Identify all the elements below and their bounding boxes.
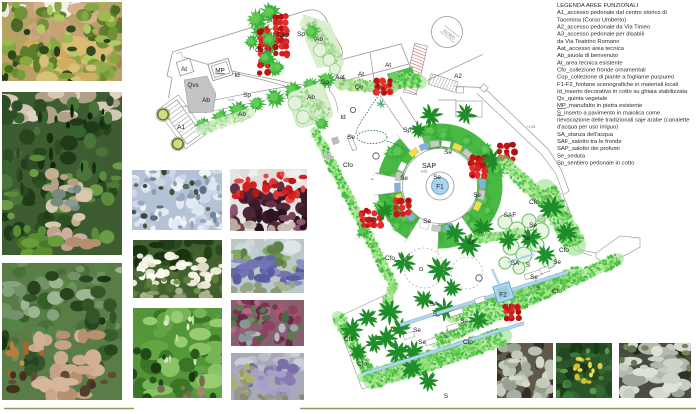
svg-text:Se: Se xyxy=(460,318,468,325)
svg-text:Se: Se xyxy=(418,339,426,346)
svg-text:MP: MP xyxy=(215,68,225,75)
svg-text:rievocazione delle tradizional: rievocazione delle tradizionali saje ara… xyxy=(557,118,690,124)
svg-text:Se: Se xyxy=(347,134,355,141)
svg-text:F1: F1 xyxy=(436,184,444,191)
svg-text:Cfo: Cfo xyxy=(552,288,562,295)
svg-text:Id_inserto decorativo in cotto: Id_inserto decorativo in cotto su ghiaia… xyxy=(557,89,688,95)
svg-text:SA: SA xyxy=(511,260,520,267)
svg-text:At: At xyxy=(385,62,391,69)
svg-text:Ab: Ab xyxy=(202,97,210,104)
svg-text:Cop: Cop xyxy=(255,47,267,54)
svg-text:Sp: Sp xyxy=(321,79,329,86)
svg-text:Se: Se xyxy=(400,175,408,182)
svg-text:Cfo_collezione fronde ornament: Cfo_collezione fronde ornamentali xyxy=(557,67,646,73)
svg-text:SA: SA xyxy=(430,301,439,308)
svg-text:Ab_aiuola di benvenuto: Ab_aiuola di benvenuto xyxy=(557,53,618,59)
svg-text:Id: Id xyxy=(340,114,346,121)
svg-text:da Via Teatrino Romano: da Via Teatrino Romano xyxy=(557,39,619,45)
svg-text:Sp: Sp xyxy=(297,31,305,38)
svg-text:Sp: Sp xyxy=(403,127,411,134)
svg-text:Taormina (Corso Umberto): Taormina (Corso Umberto) xyxy=(557,17,626,23)
svg-text:Qvs: Qvs xyxy=(187,82,198,89)
svg-text:Se: Se xyxy=(553,259,561,266)
svg-text:A1_accesso pedonale dal centro: A1_accesso pedonale dal centro storico d… xyxy=(557,10,667,16)
svg-text:Cfo: Cfo xyxy=(344,336,354,343)
svg-text:Cfo: Cfo xyxy=(357,361,367,368)
svg-text:Sp_sentiero pedonale in cotto: Sp_sentiero pedonale in cotto xyxy=(557,161,634,167)
svg-text:d'acqua per uso irriguo): d'acqua per uso irriguo) xyxy=(557,125,618,131)
svg-text:Se: Se xyxy=(522,235,530,242)
svg-text:Se: Se xyxy=(433,174,441,181)
svg-text:SA_stanza dell'acqua: SA_stanza dell'acqua xyxy=(557,132,614,138)
svg-text:A1: A1 xyxy=(177,124,185,131)
svg-text:Cfo: Cfo xyxy=(343,162,353,169)
svg-text:+1.05: +1.05 xyxy=(527,125,536,129)
svg-text:Cfo: Cfo xyxy=(559,247,569,254)
svg-text:Ab: Ab xyxy=(315,36,323,43)
svg-text:S: S xyxy=(444,393,448,400)
svg-text:Cop: Cop xyxy=(365,217,377,224)
svg-text:Cfo: Cfo xyxy=(463,339,473,346)
svg-text:F2: F2 xyxy=(499,292,507,299)
svg-text:S: S xyxy=(433,311,437,318)
svg-text:Ab: Ab xyxy=(307,94,315,101)
svg-text:Sp: Sp xyxy=(243,92,251,99)
svg-text:Se: Se xyxy=(529,222,537,229)
svg-text:SAF_salotto tra le fronde: SAF_salotto tra le fronde xyxy=(557,139,622,145)
svg-text:LEGENDA AREE FUNZIONALI: LEGENDA AREE FUNZIONALI xyxy=(557,3,639,9)
svg-text:Cop: Cop xyxy=(277,32,289,39)
svg-text:Se: Se xyxy=(530,274,538,281)
svg-text:Qv_quinta vegetale: Qv_quinta vegetale xyxy=(557,96,607,102)
svg-text:S: S xyxy=(536,285,540,292)
svg-text:F1-F2_fontane scenografiche in: F1-F2_fontane scenografiche in materiali… xyxy=(557,82,678,88)
svg-text:Se: Se xyxy=(423,218,431,225)
svg-text:MP_manufatto in pietra esisten: MP_manufatto in pietra esistente xyxy=(557,103,642,109)
svg-text:0.00: 0.00 xyxy=(421,170,428,174)
svg-text:Qv: Qv xyxy=(355,84,364,91)
svg-text:Sp: Sp xyxy=(467,239,475,246)
svg-text:S: S xyxy=(443,333,447,340)
svg-text:Se: Se xyxy=(413,327,421,334)
svg-text:SAF: SAF xyxy=(504,212,517,219)
svg-text:S: S xyxy=(526,262,530,269)
svg-text:Cfo: Cfo xyxy=(385,255,395,262)
svg-text:A3_accesso pedonale per disabi: A3_accesso pedonale per disabili xyxy=(557,32,644,38)
svg-text:+4.60: +4.60 xyxy=(227,98,235,102)
svg-text:Se_seduta: Se_seduta xyxy=(557,153,586,159)
svg-text:At: At xyxy=(181,66,187,73)
svg-text:Cop_collezione di piante a fog: Cop_collezione di piante a fogliame purp… xyxy=(557,75,674,81)
svg-text:Aat: Aat xyxy=(335,74,345,81)
svg-text:Cfo: Cfo xyxy=(529,199,539,206)
svg-text:Se: Se xyxy=(473,192,481,199)
svg-text:Se: Se xyxy=(444,149,452,156)
svg-text:A2_accesso pedonale da Via Tim: A2_accesso pedonale da Via Timeo xyxy=(557,25,650,31)
svg-text:At: At xyxy=(358,71,364,78)
svg-text:Aat_accesso area tecnica: Aat_accesso area tecnica xyxy=(557,46,625,52)
svg-text:SAP_salotto dei profumi: SAP_salotto dei profumi xyxy=(557,146,620,152)
svg-text:At_area tecnica esistente: At_area tecnica esistente xyxy=(557,60,623,66)
svg-text:A2: A2 xyxy=(454,73,462,80)
svg-text:Ab: Ab xyxy=(238,111,246,118)
svg-text:Id: Id xyxy=(234,72,240,79)
svg-text:S_inserto a pavimento in maiol: S_inserto a pavimento in maiolica come xyxy=(557,110,660,116)
